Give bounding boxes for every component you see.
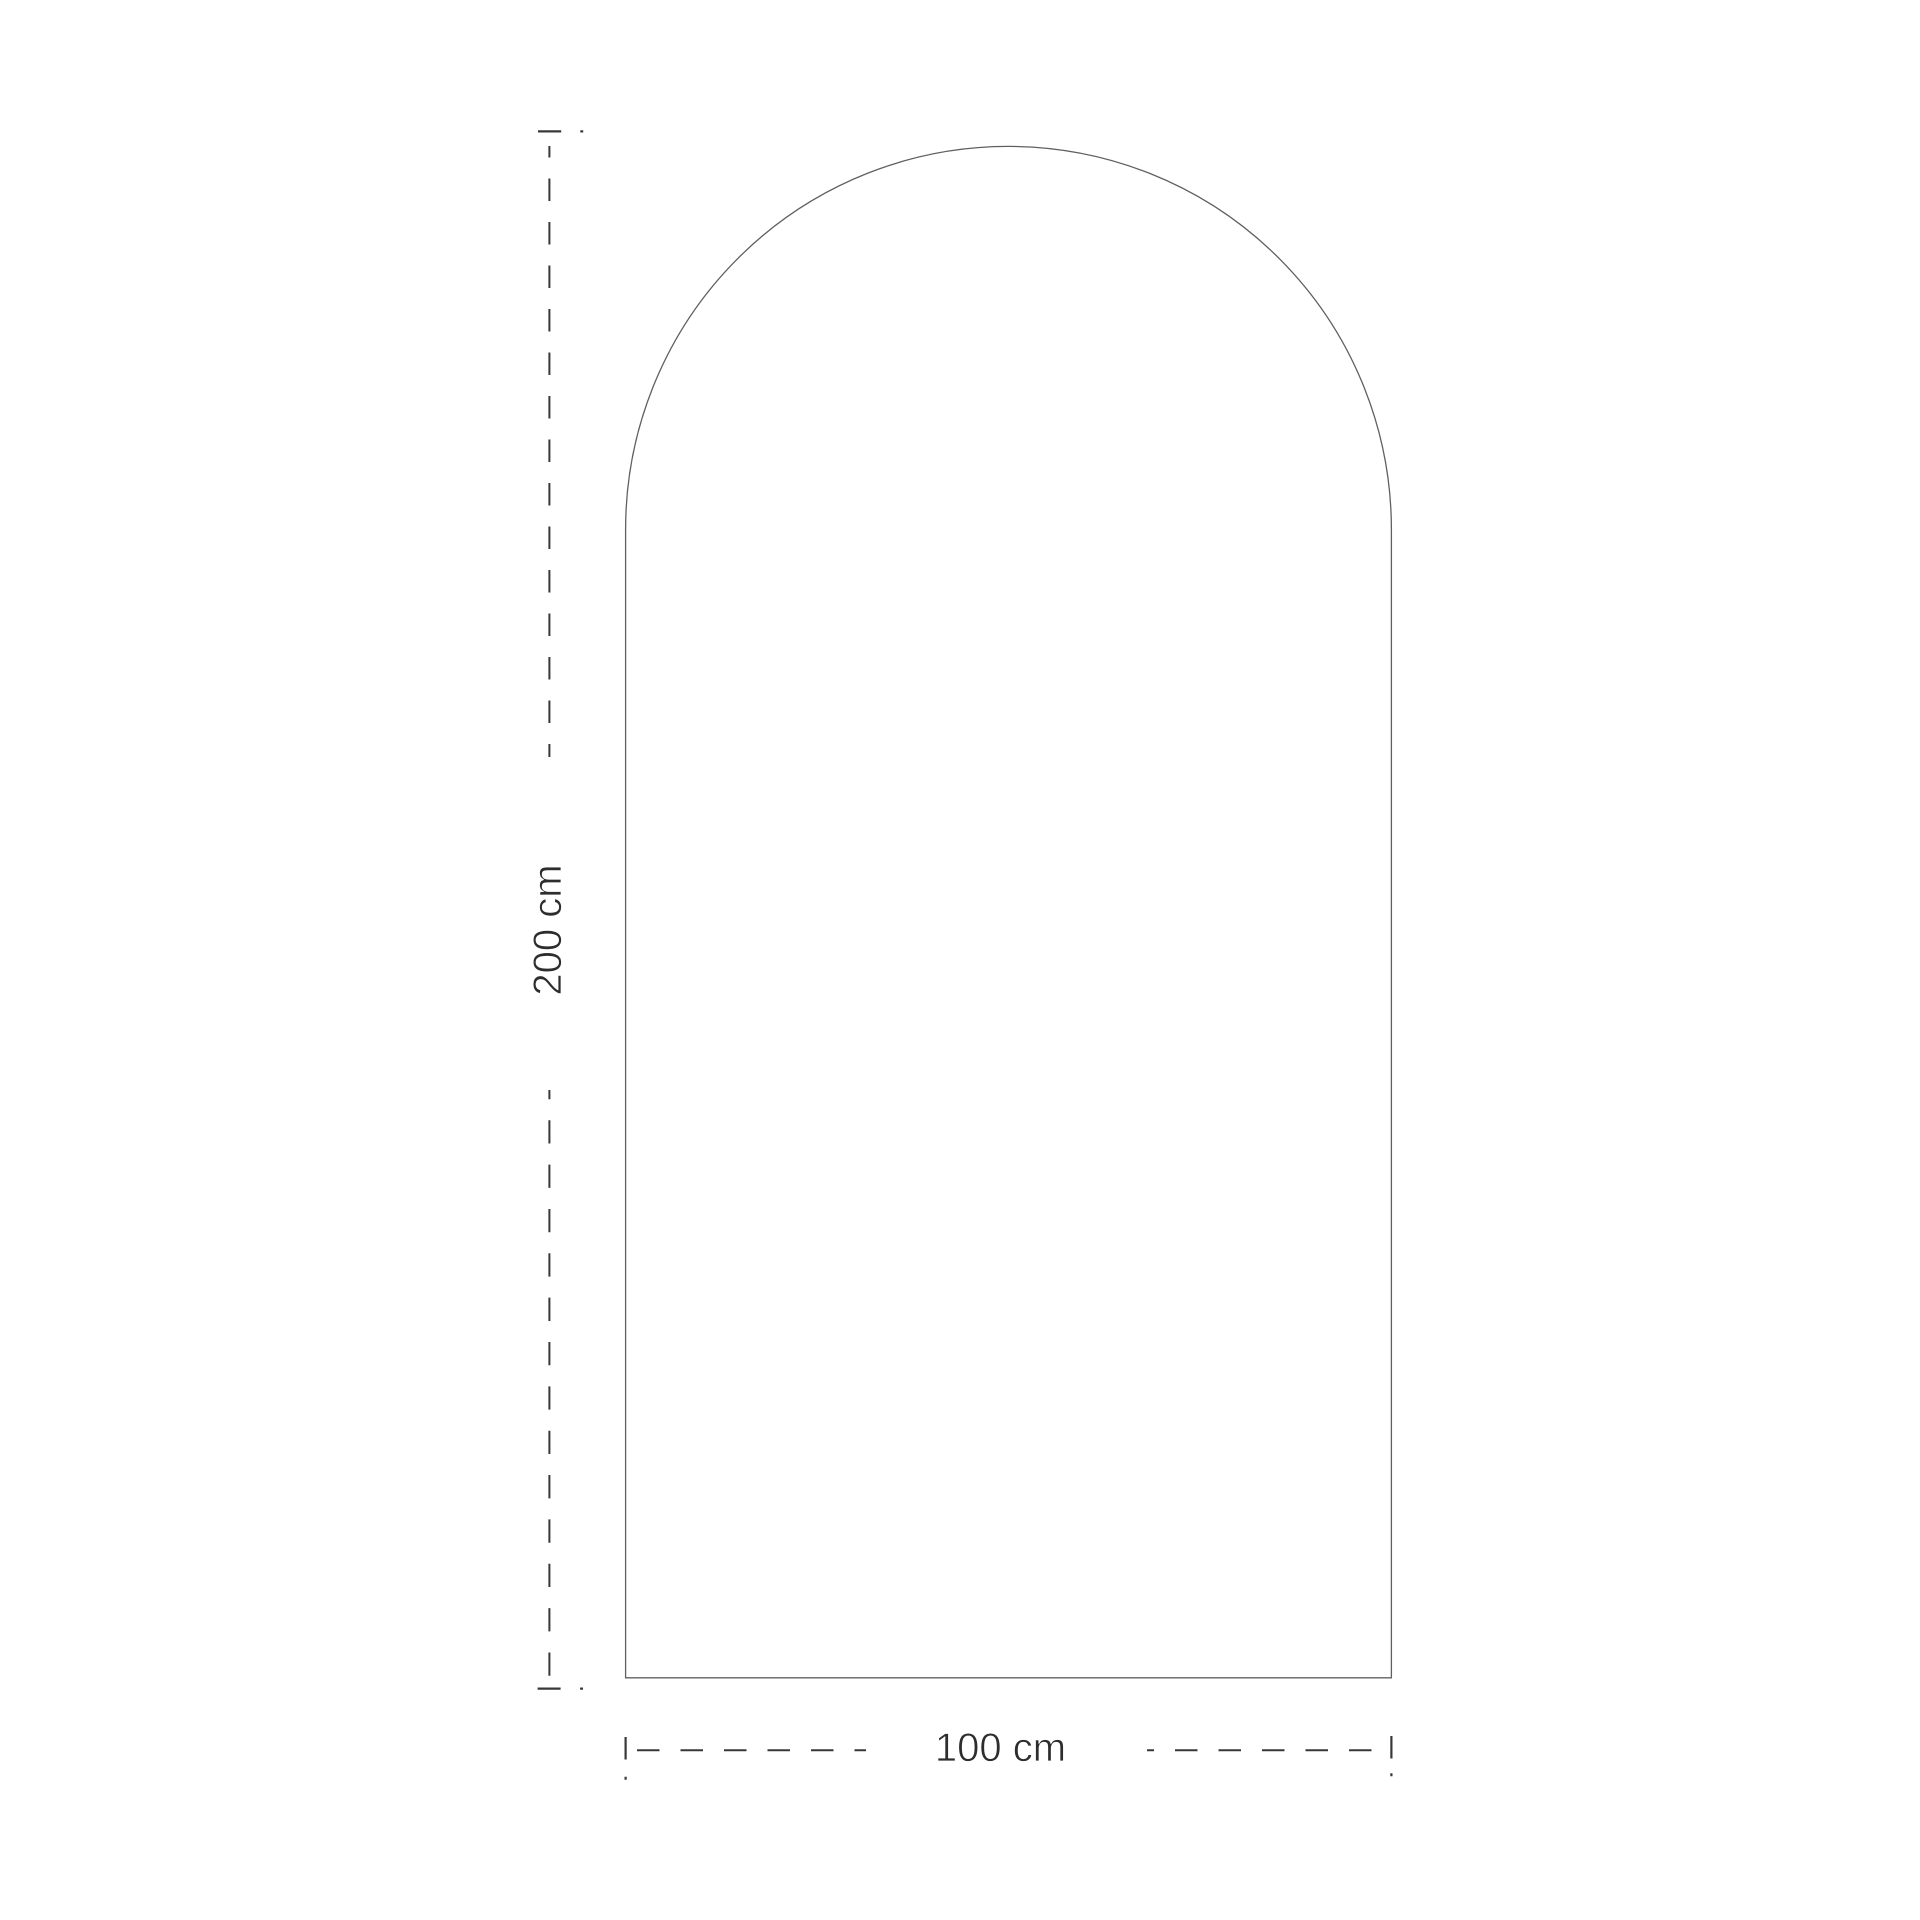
- svg-text:100 cm: 100 cm: [935, 1726, 1066, 1770]
- svg-text:200 cm: 200 cm: [526, 864, 570, 995]
